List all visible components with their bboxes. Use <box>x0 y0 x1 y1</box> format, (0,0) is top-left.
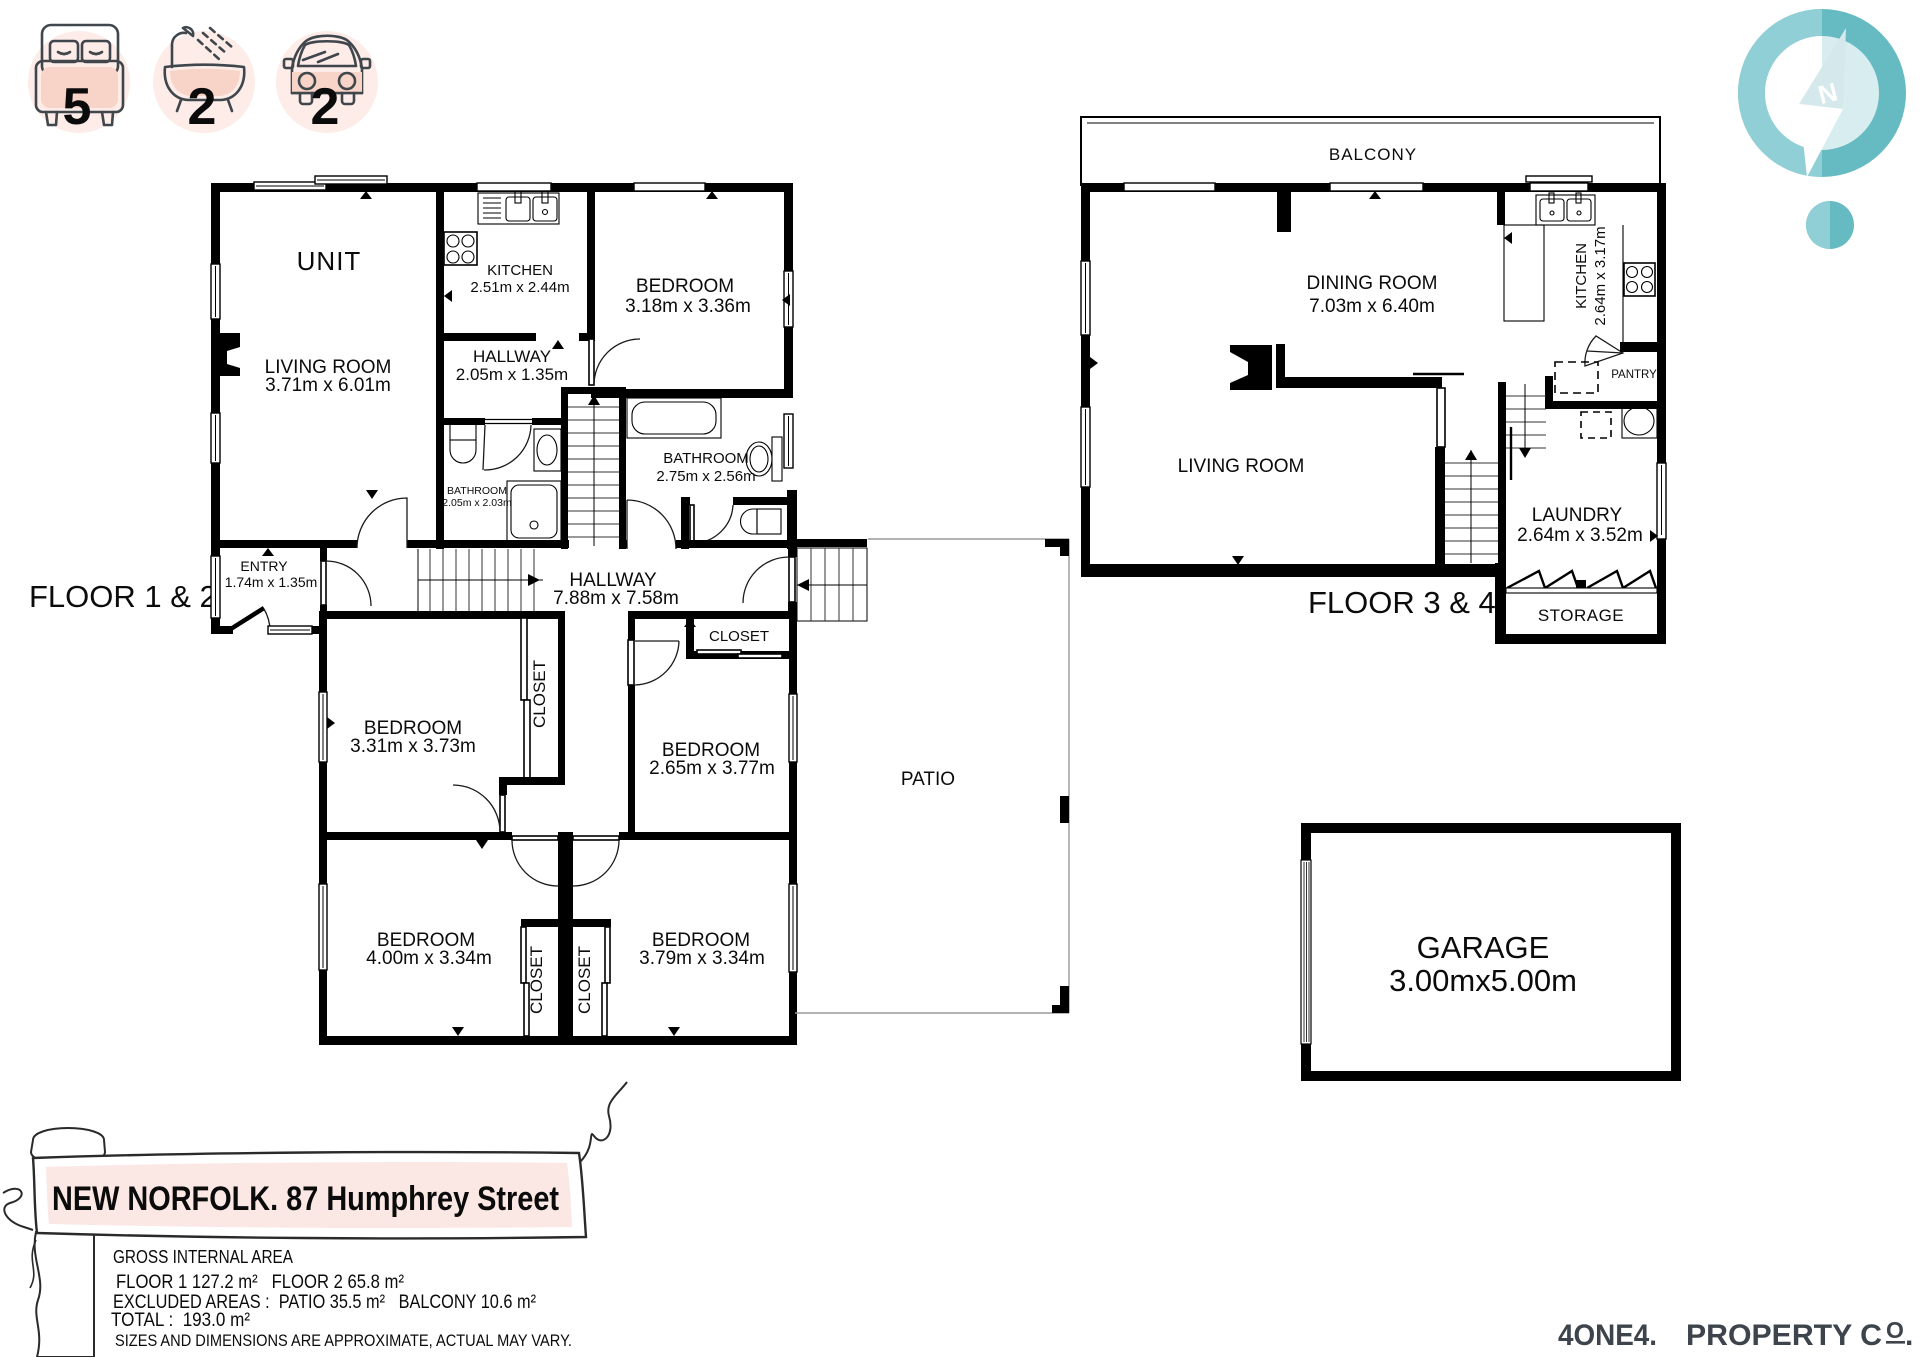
svg-text:2.64m x 3.52m: 2.64m x 3.52m <box>1517 525 1643 546</box>
svg-text:3.18m x 3.36m: 3.18m x 3.36m <box>625 296 751 317</box>
svg-text:UNIT: UNIT <box>297 246 362 276</box>
svg-text:CLOSET: CLOSET <box>709 628 769 645</box>
svg-text:.: . <box>1905 1319 1913 1352</box>
svg-text:2.05m x 1.35m: 2.05m x 1.35m <box>456 365 568 384</box>
svg-text:7.88m x 7.58m: 7.88m x 7.58m <box>553 588 679 609</box>
svg-text:HALLWAY: HALLWAY <box>473 347 551 366</box>
svg-text:2.51m x 2.44m: 2.51m x 2.44m <box>470 279 569 296</box>
svg-text:STORAGE: STORAGE <box>1538 606 1624 625</box>
svg-text:3.71m x 6.01m: 3.71m x 6.01m <box>265 375 391 396</box>
svg-text:BATHROOM: BATHROOM <box>663 450 749 467</box>
svg-text:5: 5 <box>63 78 92 136</box>
svg-text:7.03m x 6.40m: 7.03m x 6.40m <box>1309 296 1435 317</box>
svg-text:KITCHEN: KITCHEN <box>1573 243 1590 309</box>
svg-text:PANTRY: PANTRY <box>1611 369 1657 381</box>
svg-text:2.64m x 3.17m: 2.64m x 3.17m <box>1592 226 1609 325</box>
svg-text:2.75m x 2.56m: 2.75m x 2.56m <box>656 468 755 485</box>
svg-text:ENTRY: ENTRY <box>240 558 288 574</box>
svg-text:BATHROOM: BATHROOM <box>447 485 507 497</box>
svg-text:3.79m x 3.34m: 3.79m x 3.34m <box>639 948 765 969</box>
svg-text:BEDROOM: BEDROOM <box>636 276 734 297</box>
svg-text:PROPERTY C: PROPERTY C <box>1686 1319 1882 1352</box>
svg-text:O: O <box>1886 1317 1904 1343</box>
svg-text:2.05m x 2.03m: 2.05m x 2.03m <box>442 497 512 509</box>
svg-text:3.00mx5.00m: 3.00mx5.00m <box>1389 963 1577 998</box>
svg-text:CLOSET: CLOSET <box>575 946 594 1014</box>
svg-text:CLOSET: CLOSET <box>530 660 549 728</box>
svg-text:2.65m x 3.77m: 2.65m x 3.77m <box>649 758 775 779</box>
svg-text:KITCHEN: KITCHEN <box>487 262 553 279</box>
svg-text:LIVING ROOM: LIVING ROOM <box>1178 456 1305 477</box>
svg-text:FLOOR 1 & 2: FLOOR 1 & 2 <box>29 579 217 614</box>
svg-text:GARAGE: GARAGE <box>1417 930 1550 965</box>
svg-text:2: 2 <box>188 78 217 136</box>
svg-text:SIZES AND DIMENSIONS ARE APPRO: SIZES AND DIMENSIONS ARE APPROXIMATE, AC… <box>115 1331 572 1350</box>
svg-text:FLOOR 3 & 4: FLOOR 3 & 4 <box>1308 585 1496 620</box>
svg-text:BALCONY: BALCONY <box>1329 145 1417 164</box>
svg-text:1.74m x 1.35m: 1.74m x 1.35m <box>225 574 318 590</box>
svg-text:3.31m x 3.73m: 3.31m x 3.73m <box>350 736 476 757</box>
svg-text:DINING ROOM: DINING ROOM <box>1307 273 1438 294</box>
svg-text:4ONE4.: 4ONE4. <box>1558 1319 1657 1352</box>
svg-text:TOTAL : 193.0 m²: TOTAL : 193.0 m² <box>111 1310 250 1331</box>
svg-text:CLOSET: CLOSET <box>527 946 546 1014</box>
svg-text:LAUNDRY: LAUNDRY <box>1532 505 1623 526</box>
svg-text:4.00m x 3.34m: 4.00m x 3.34m <box>366 948 492 969</box>
svg-text:PATIO: PATIO <box>901 769 955 790</box>
svg-text:2: 2 <box>311 78 340 136</box>
svg-text:FLOOR 1 127.2 m² FLOOR 2 65.: FLOOR 1 127.2 m² FLOOR 2 65.8 m² <box>116 1272 404 1293</box>
svg-text:NEW NORFOLK. 87 Humphrey Stree: NEW NORFOLK. 87 Humphrey Street <box>52 1180 559 1218</box>
svg-text:GROSS INTERNAL AREA: GROSS INTERNAL AREA <box>113 1247 293 1267</box>
